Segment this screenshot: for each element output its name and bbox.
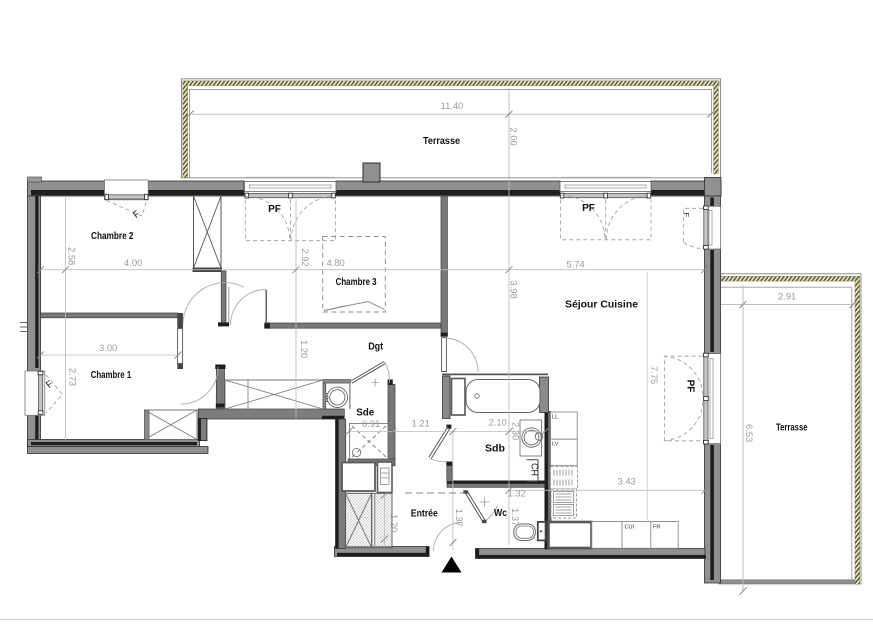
svg-text:11.40: 11.40 [441, 100, 464, 111]
svg-text:Séjour Cuisine: Séjour Cuisine [565, 300, 638, 311]
svg-text:2.00: 2.00 [509, 128, 520, 146]
svg-text:1.32: 1.32 [508, 487, 526, 498]
svg-text:Sde: Sde [356, 408, 374, 419]
svg-text:2.30: 2.30 [510, 422, 521, 440]
svg-text:Wc: Wc [494, 508, 507, 519]
svg-text:F: F [131, 209, 143, 221]
svg-text:Terrasse: Terrasse [423, 136, 460, 147]
svg-text:3.98: 3.98 [509, 281, 520, 299]
svg-text:Sdb: Sdb [485, 444, 505, 455]
svg-text:2.10: 2.10 [489, 417, 507, 428]
svg-text:6.53: 6.53 [744, 424, 755, 442]
svg-text:2.73: 2.73 [68, 368, 79, 386]
svg-text:3.43: 3.43 [618, 476, 636, 487]
svg-text:1.37: 1.37 [510, 508, 521, 526]
svg-text:7.75: 7.75 [649, 366, 660, 384]
svg-text:F: F [44, 379, 56, 391]
svg-text:4.00: 4.00 [124, 257, 142, 268]
svg-text:1.37: 1.37 [454, 509, 465, 527]
svg-text:2.92: 2.92 [300, 249, 311, 267]
svg-text:LV: LV [552, 442, 559, 448]
svg-text:5.74: 5.74 [567, 259, 585, 270]
svg-text:2.58: 2.58 [67, 247, 78, 265]
svg-text:4.80: 4.80 [327, 257, 345, 268]
svg-text:1.21: 1.21 [412, 418, 430, 429]
svg-text:Dgt: Dgt [368, 341, 384, 352]
svg-text:PF: PF [685, 380, 696, 393]
svg-text:1.20: 1.20 [299, 340, 310, 358]
svg-text:CH: CH [530, 463, 540, 476]
svg-text:3.00: 3.00 [99, 342, 117, 353]
svg-text:0.91: 0.91 [362, 418, 380, 429]
svg-text:LL: LL [552, 415, 558, 421]
svg-text:Chambre 3: Chambre 3 [336, 277, 377, 288]
svg-text:PF: PF [582, 203, 595, 214]
svg-text:Terrasse: Terrasse [776, 423, 808, 434]
svg-text:PF: PF [268, 204, 281, 215]
svg-text:F: F [682, 213, 691, 218]
svg-text:FR: FR [653, 525, 660, 531]
svg-text:Chambre 2: Chambre 2 [91, 231, 134, 242]
svg-text:2.91: 2.91 [778, 291, 796, 302]
svg-text:CUI: CUI [625, 525, 635, 531]
svg-text:Chambre 1: Chambre 1 [91, 370, 132, 381]
svg-text:1.20: 1.20 [389, 514, 400, 532]
svg-text:Entrée: Entrée [411, 508, 438, 519]
